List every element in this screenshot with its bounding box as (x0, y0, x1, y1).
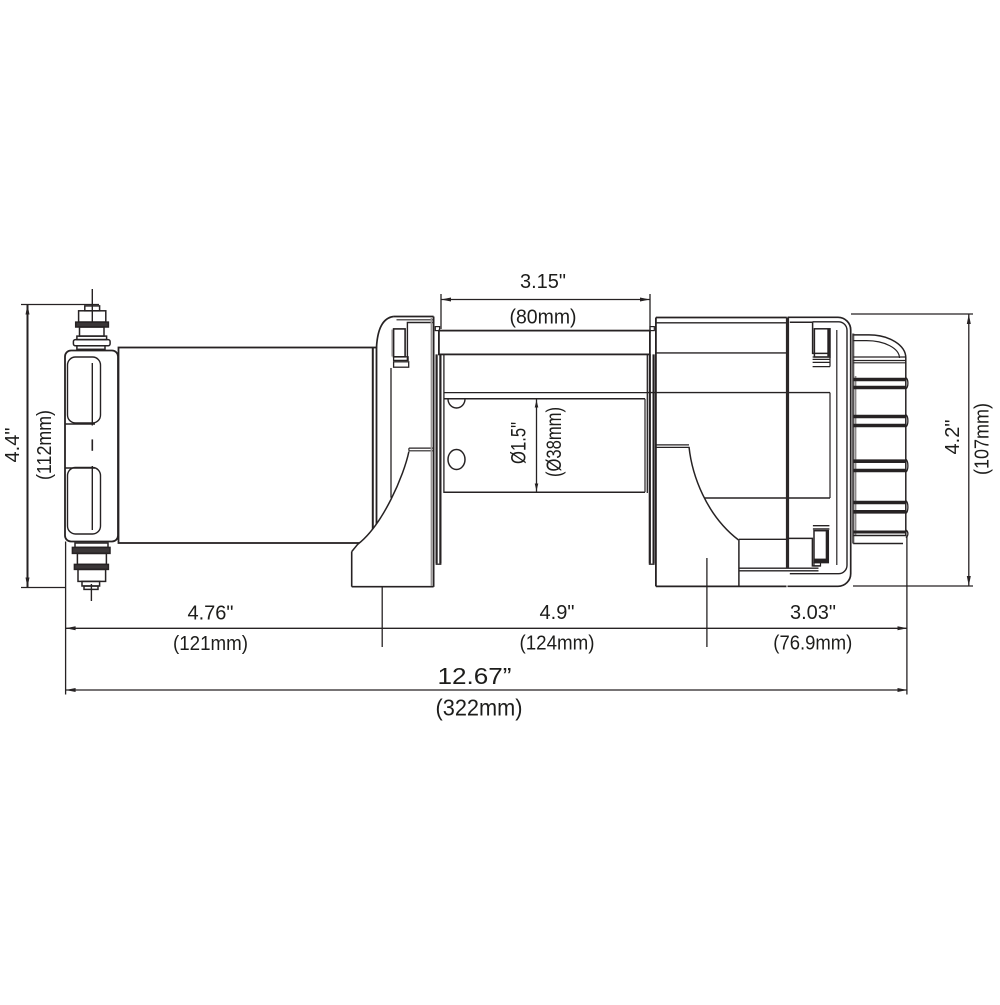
svg-text:4.9": 4.9" (540, 602, 575, 624)
svg-text:(107mm): (107mm) (972, 403, 994, 475)
svg-text:3.15": 3.15" (520, 271, 566, 293)
svg-text:(124mm): (124mm) (520, 633, 595, 655)
svg-text:(112mm): (112mm) (34, 410, 56, 480)
svg-text:(80mm): (80mm) (510, 307, 577, 329)
svg-text:4.76": 4.76" (187, 603, 233, 625)
svg-text:3.03": 3.03" (790, 602, 836, 624)
svg-text:(Ø38mm): (Ø38mm) (543, 407, 566, 477)
svg-text:12.67”: 12.67” (438, 663, 512, 689)
svg-text:(322mm): (322mm) (436, 695, 523, 721)
svg-text:4.4": 4.4" (2, 428, 24, 463)
svg-text:4.2": 4.2" (942, 420, 964, 455)
svg-text:(121mm): (121mm) (173, 633, 248, 655)
svg-text:(76.9mm): (76.9mm) (773, 633, 852, 655)
svg-text:Ø1.5": Ø1.5" (508, 422, 531, 464)
